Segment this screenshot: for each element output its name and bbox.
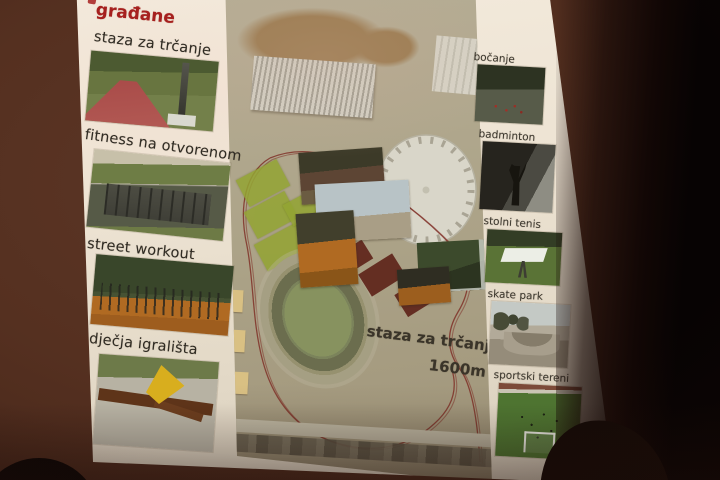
badminton-player	[506, 160, 527, 206]
light-pole	[178, 63, 189, 119]
tree-silhouettes	[493, 307, 529, 331]
workout-bars	[100, 283, 223, 320]
photo-of-projected-slide: staza za trčanje 1600m građane staza za …	[0, 0, 720, 480]
table-leg	[518, 260, 528, 277]
skate-ramp	[503, 332, 559, 356]
table-tennis-table	[500, 248, 547, 262]
pole-base	[167, 113, 196, 126]
table-tennis-photo	[485, 229, 563, 286]
bocce-photo	[475, 64, 546, 124]
playground-photo	[93, 354, 219, 452]
outdoor-fitness-photo	[86, 149, 230, 241]
dark-room-edge	[556, 0, 720, 480]
audience-head-silhouette	[0, 458, 100, 480]
badminton-photo	[479, 141, 555, 213]
fitness-equipment	[104, 183, 211, 225]
street-workout-photo	[90, 254, 234, 336]
running-track-photo	[85, 51, 219, 132]
